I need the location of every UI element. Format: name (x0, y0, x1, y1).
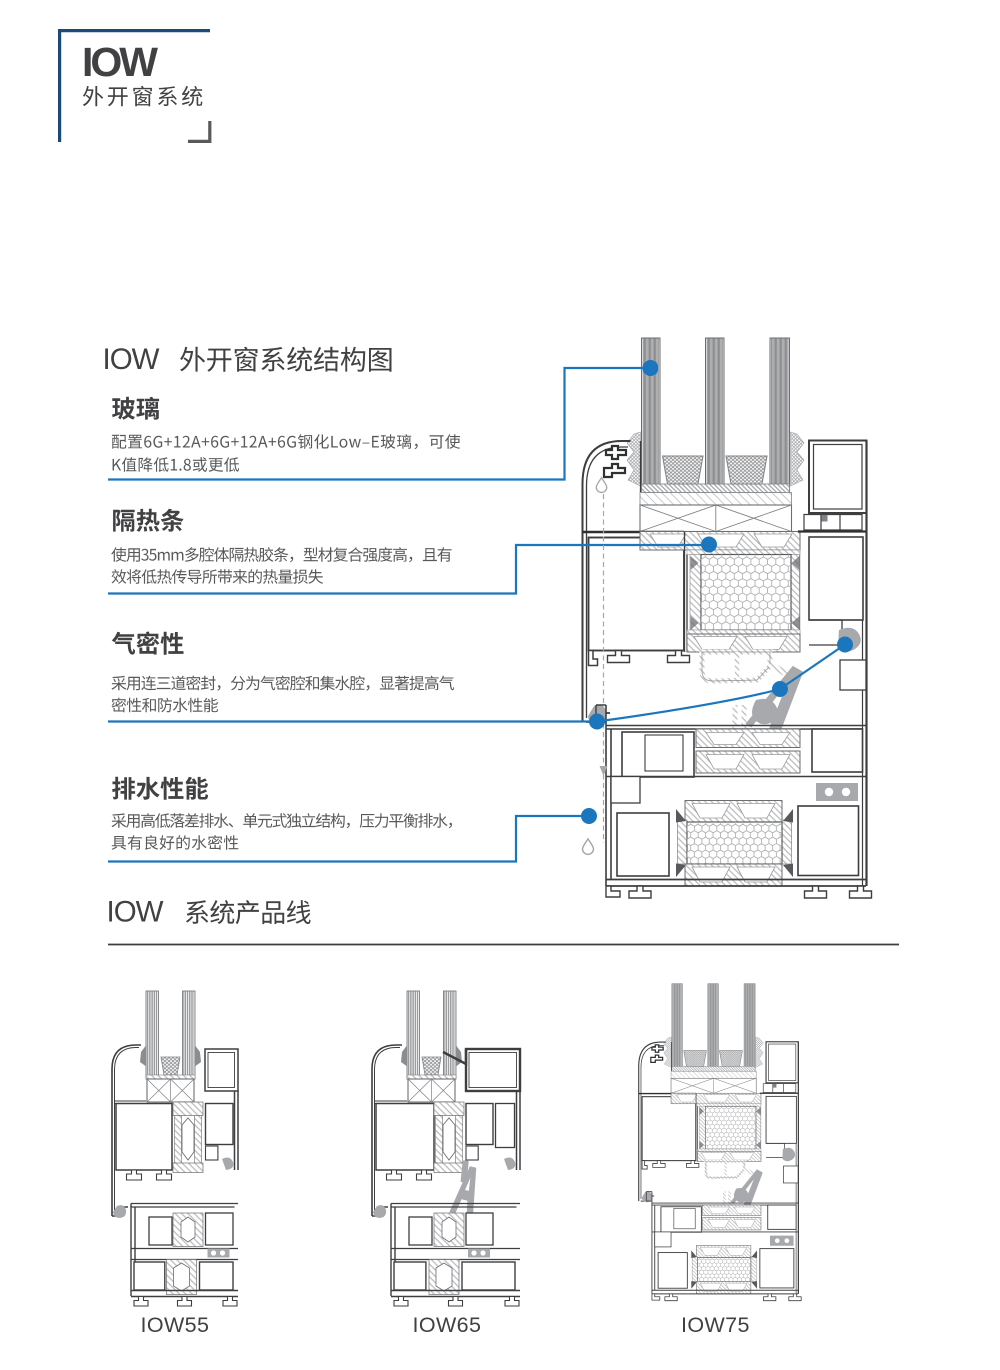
svg-text:IOW: IOW (82, 39, 158, 85)
svg-text:IOW: IOW (107, 896, 164, 929)
svg-text:IOW65: IOW65 (413, 1313, 482, 1337)
svg-text:IOW75: IOW75 (681, 1313, 750, 1337)
svg-text:IOW: IOW (103, 343, 160, 376)
svg-text:IOW55: IOW55 (141, 1313, 210, 1337)
